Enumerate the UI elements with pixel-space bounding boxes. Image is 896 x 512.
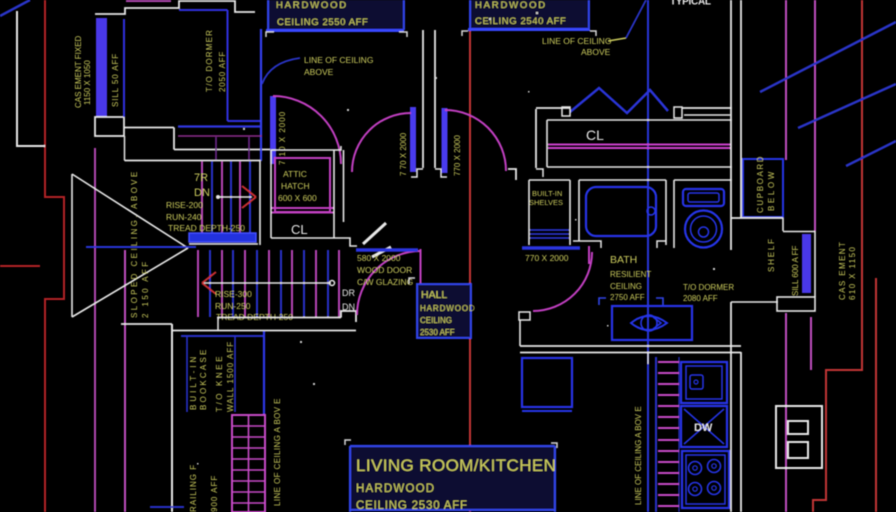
svg-text:DN: DN (342, 302, 355, 312)
svg-text:SHELVES: SHELVES (529, 198, 563, 207)
svg-text:770 X 2000: 770 X 2000 (453, 135, 462, 176)
svg-text:DN: DN (194, 187, 210, 199)
svg-text:580 X 2000: 580 X 2000 (357, 253, 401, 263)
svg-text:CEILING 2540 AFF: CEILING 2540 AFF (475, 16, 566, 27)
svg-text:HARDWOOD: HARDWOOD (475, 0, 547, 11)
svg-text:SILL 50 AFF: SILL 50 AFF (111, 53, 120, 107)
svg-text:2080 AFF: 2080 AFF (683, 294, 718, 303)
svg-text:TREAD DEPTH-250: TREAD DEPTH-250 (168, 223, 245, 233)
svg-text:HALL: HALL (421, 289, 447, 301)
svg-text:CEILING 2550 AFF: CEILING 2550 AFF (277, 17, 368, 28)
svg-text:600 X 600: 600 X 600 (278, 193, 317, 203)
svg-text:2530 AFF: 2530 AFF (420, 328, 455, 337)
svg-text:WOOD DOOR: WOOD DOOR (357, 265, 412, 275)
svg-text:SHELF: SHELF (767, 237, 776, 272)
svg-text:WALL 1500 AFF: WALL 1500 AFF (226, 341, 235, 412)
svg-text:BOOKCASE: BOOKCASE (199, 347, 208, 410)
svg-text:CEILING: CEILING (420, 316, 452, 325)
svg-text:RISE-200: RISE-200 (166, 200, 203, 210)
svg-text:HARDWOOD: HARDWOOD (356, 483, 435, 495)
svg-text:RAILING F: RAILING F (189, 464, 198, 512)
svg-text:7 10 X 2000: 7 10 X 2000 (278, 111, 287, 165)
svg-text:RUN-240: RUN-240 (166, 212, 202, 222)
svg-text:LINE OF CEILING A BOV E: LINE OF CEILING A BOV E (273, 398, 282, 506)
svg-text:TYPICAL: TYPICAL (670, 0, 711, 8)
svg-text:LINE OF CEILING: LINE OF CEILING (304, 55, 373, 65)
svg-text:BELOW: BELOW (767, 169, 776, 211)
svg-text:CEILING: CEILING (610, 282, 642, 291)
svg-text:CEILING 2530 AFF: CEILING 2530 AFF (356, 500, 468, 512)
svg-text:LIVING ROOM/KITCHEN: LIVING ROOM/KITCHEN (356, 456, 556, 475)
svg-text:ABOVE: ABOVE (304, 67, 334, 77)
svg-text:CAS EMENT FIXED: CAS EMENT FIXED (74, 35, 83, 108)
svg-text:SLOPED CEILING. ABOVE: SLOPED CEILING. ABOVE (130, 169, 139, 318)
svg-text:7R: 7R (194, 172, 208, 184)
svg-text:HARDWOOD: HARDWOOD (276, 0, 348, 11)
svg-text:DR: DR (342, 288, 355, 298)
svg-text:900 AFF: 900 AFF (210, 475, 219, 512)
svg-text:770 X 2000: 770 X 2000 (525, 253, 569, 263)
svg-text:T/O DORMER: T/O DORMER (683, 283, 734, 292)
svg-text:HARDWOOD: HARDWOOD (420, 304, 476, 313)
svg-text:RESILIENT: RESILIENT (610, 270, 651, 279)
svg-text:LINE OF CEILING: LINE OF CEILING (542, 36, 611, 46)
svg-text:HATCH: HATCH (281, 181, 310, 191)
svg-text:2750 AFF: 2750 AFF (610, 293, 645, 302)
svg-text:1150 X 1050: 1150 X 1050 (83, 60, 92, 105)
svg-text:ABOVE: ABOVE (581, 47, 611, 57)
svg-text:T/O DORMER: T/O DORMER (205, 29, 214, 92)
svg-text:2050 AFF: 2050 AFF (218, 51, 227, 92)
svg-text:ATTIC: ATTIC (283, 169, 307, 179)
svg-text:DW: DW (694, 422, 713, 434)
svg-text:CL: CL (291, 222, 308, 237)
svg-text:C/W GLAZING: C/W GLAZING (357, 277, 413, 287)
svg-text:CUPBOARD: CUPBOARD (756, 155, 765, 213)
svg-text:2 150 AFF: 2 150 AFF (141, 259, 150, 318)
svg-text:7 70 X 2000: 7 70 X 2000 (399, 132, 408, 176)
svg-text:SILL 600 A FF: SILL 600 A FF (791, 245, 800, 296)
svg-text:CL: CL (586, 127, 604, 143)
svg-text:610 X 1150: 610 X 1150 (848, 246, 857, 300)
svg-text:T/O KNEE: T/O KNEE (215, 354, 224, 412)
svg-text:BATH: BATH (610, 254, 637, 266)
svg-text:CAS EMENT: CAS EMENT (838, 241, 847, 300)
svg-text:LINE OF CEILING A BOV E: LINE OF CEILING A BOV E (634, 406, 643, 505)
svg-text:RISE-300: RISE-300 (215, 289, 252, 299)
svg-text:BUILT-IN: BUILT-IN (532, 189, 562, 198)
svg-text:BUILT-IN: BUILT-IN (189, 354, 198, 410)
svg-text:RUN-250: RUN-250 (215, 301, 251, 311)
